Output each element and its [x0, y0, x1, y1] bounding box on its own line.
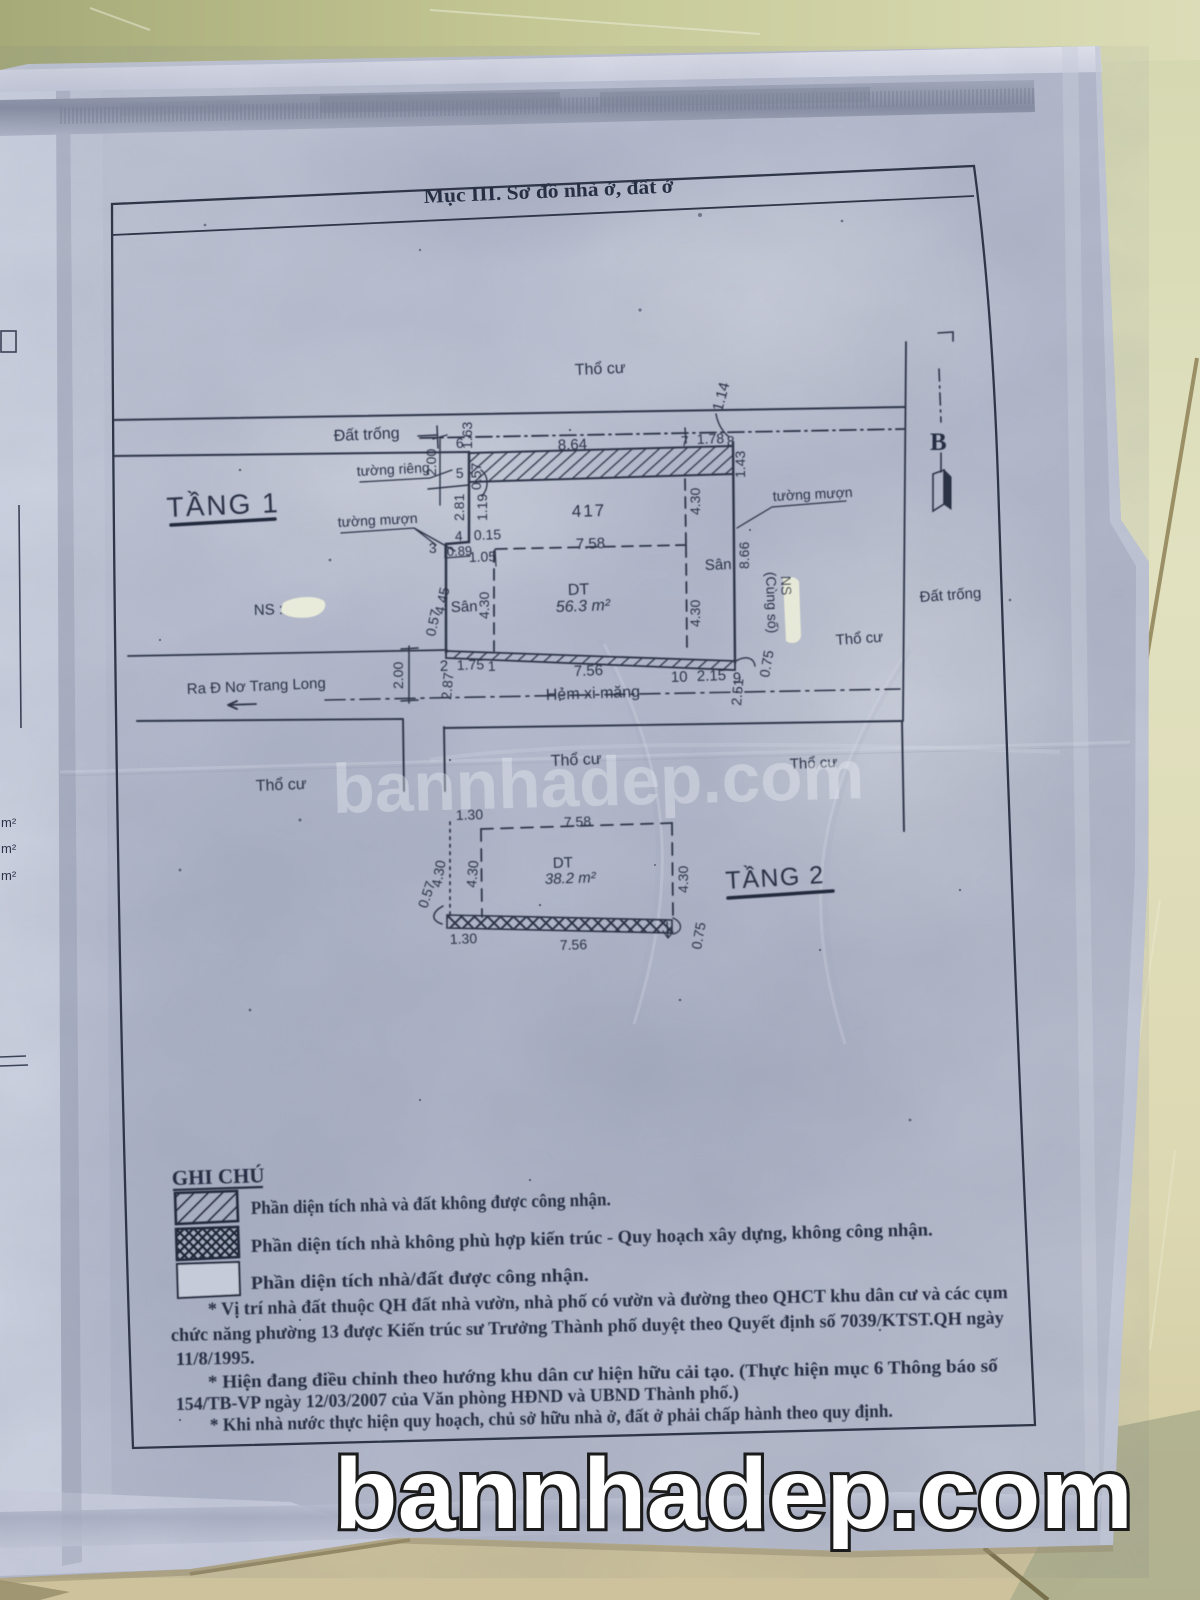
svg-text:38.2 m²: 38.2 m²: [545, 869, 597, 888]
svg-text:4.30: 4.30: [675, 866, 691, 893]
svg-text:10: 10: [671, 668, 688, 686]
svg-text:2.51: 2.51: [728, 678, 746, 707]
svg-text:7.56: 7.56: [574, 662, 604, 680]
svg-text:m²: m²: [1, 868, 17, 883]
svg-text:4.30: 4.30: [687, 600, 703, 627]
svg-text:2.87: 2.87: [438, 672, 456, 701]
svg-text:GHI CHÚ: GHI CHÚ: [171, 1163, 264, 1190]
svg-text:8.66: 8.66: [736, 542, 752, 569]
svg-text:Đất trống: Đất trống: [333, 425, 399, 445]
svg-text:Thổ cư: Thổ cư: [574, 359, 626, 379]
svg-text:1.05: 1.05: [469, 548, 497, 565]
svg-text:Thổ cư: Thổ cư: [835, 629, 884, 649]
svg-text:4.30: 4.30: [687, 488, 703, 515]
svg-text:m²: m²: [1, 841, 17, 856]
svg-text:NS :: NS :: [254, 601, 284, 619]
svg-text:Thổ cư: Thổ cư: [255, 775, 307, 795]
svg-text:4.30: 4.30: [463, 860, 481, 889]
svg-text:bannhadep.com: bannhadep.com: [334, 1438, 1133, 1550]
svg-text:1.30: 1.30: [450, 930, 478, 947]
svg-text:Sân: Sân: [451, 598, 478, 616]
svg-text:5: 5: [456, 465, 465, 481]
svg-text:1.78: 1.78: [697, 430, 725, 447]
svg-text:11/8/1995.: 11/8/1995.: [176, 1348, 255, 1370]
svg-text:417: 417: [571, 501, 606, 521]
svg-text:1.63: 1.63: [459, 422, 475, 449]
svg-text:1.75: 1.75: [457, 656, 485, 673]
svg-text:B: B: [930, 429, 947, 456]
svg-text:2.00: 2.00: [390, 662, 406, 689]
svg-text:DT: DT: [568, 581, 590, 599]
svg-text:1.43: 1.43: [732, 451, 748, 478]
svg-text:TẦNG 2: TẦNG 2: [725, 860, 826, 895]
svg-text:1: 1: [488, 658, 497, 674]
svg-text:TẦNG 1: TẦNG 1: [166, 487, 280, 523]
svg-text:7.58: 7.58: [576, 535, 606, 553]
svg-text:bannhadep.com: bannhadep.com: [331, 735, 865, 828]
svg-text:1.19: 1.19: [474, 494, 490, 521]
svg-text:56.3 m²: 56.3 m²: [556, 597, 611, 616]
svg-text:7.56: 7.56: [560, 936, 588, 953]
svg-text:4.30: 4.30: [476, 592, 492, 619]
svg-text:0.15: 0.15: [474, 526, 502, 543]
svg-text:(Cùng số): (Cùng số): [763, 572, 781, 634]
svg-text:m²: m²: [1, 815, 17, 830]
svg-text:Hẻm xi măng: Hẻm xi măng: [546, 684, 641, 704]
svg-text:3: 3: [429, 540, 438, 556]
svg-text:Sân: Sân: [705, 556, 732, 574]
svg-text:2.81: 2.81: [451, 494, 467, 521]
svg-text:2.15: 2.15: [697, 667, 727, 685]
